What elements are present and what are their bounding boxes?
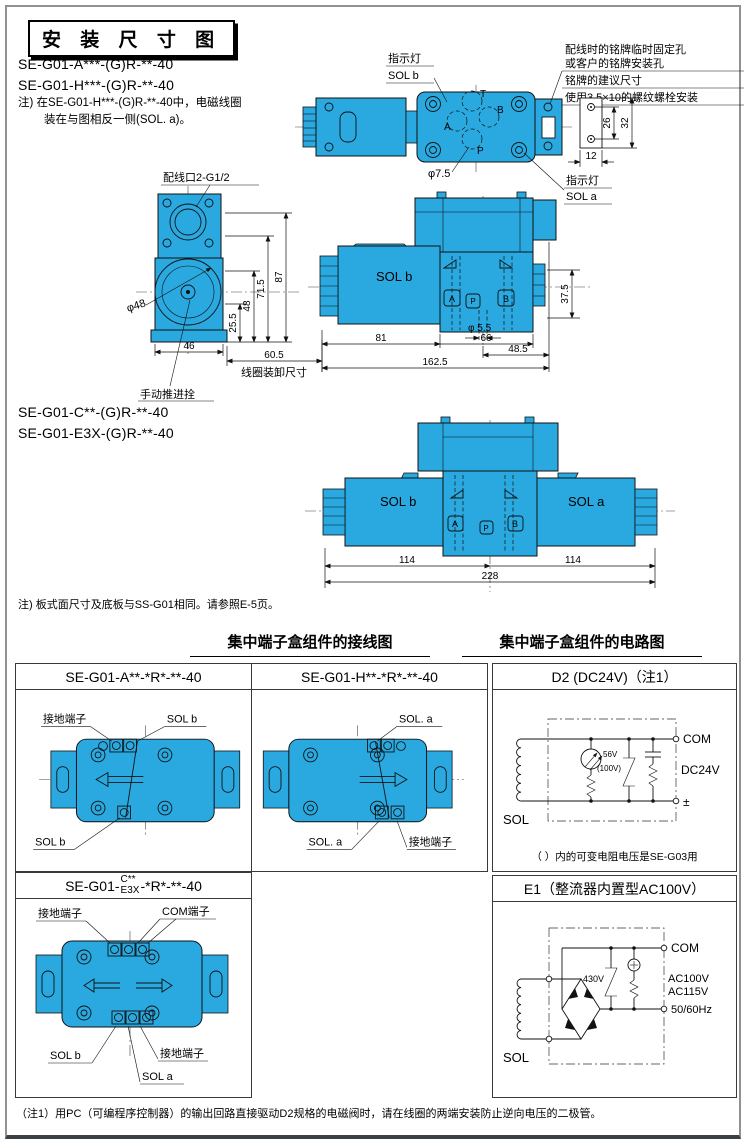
- cell-a-sol-top-label: SOL b: [167, 713, 197, 725]
- indicator-b-label: 指示灯: [388, 51, 421, 65]
- double-view: SOL b SOL a A P B 114 114: [305, 417, 675, 592]
- cell-a-sol-bottom-label: SOL b: [35, 836, 65, 848]
- e1-circuit-diagram: 430V COM AC100V AC115V 50/60Hz SOL: [493, 902, 735, 1096]
- dim-114-right: 114: [565, 555, 581, 566]
- cell-c-header-bottom: E3X: [121, 886, 140, 897]
- indicator-a-sol: SOL a: [566, 191, 598, 203]
- cell-c-sol-b-label: SOL b: [50, 1050, 81, 1062]
- dim-37-5: 37.5: [560, 284, 571, 304]
- cell-h-sol-bottom-label: SOL. a: [309, 836, 343, 848]
- d2-sol-label: SOL: [503, 812, 529, 827]
- indicator-a-label: 指示灯: [566, 173, 599, 187]
- d2-circuit-box: D2 (DC24V)（注1） 56V (100V): [492, 663, 737, 872]
- model-list-mid: SE-G01-C**-(G)R-**-40 SE-G01-E3X-(G)R-**…: [18, 402, 174, 444]
- front-view: SOL b A P B 37.5 φ 5.5: [308, 192, 592, 372]
- dim-26: 26: [602, 117, 613, 129]
- note-1: 注) 在SE-G01-H***-(G)R-**-40中，电磁线圈 装在与图相反一…: [18, 95, 348, 130]
- d2-com-label: COM: [683, 732, 711, 746]
- cell-h-sol-top-label: SOL. a: [399, 713, 433, 725]
- d2-circuit-diagram: 56V (100V) COM DC24V ± SOL: [493, 690, 735, 870]
- e1-varistor-voltage: 430V: [583, 974, 604, 984]
- cell-a-diagram: 接地端子 SOL b SOL b: [16, 690, 251, 870]
- cell-c-header-suffix: -*R*-**-40: [140, 878, 201, 894]
- dim-48: 48: [242, 300, 253, 312]
- dim-114-left: 114: [399, 555, 415, 566]
- wiring-section-title: 集中端子盒组件的接线图: [190, 631, 430, 657]
- nameplate-notes: 配线时的铭牌临时固定孔 或客户的铭牌安装孔 铭牌的建议尺寸 使用3.5×10的螺…: [550, 42, 744, 105]
- d2-voltage-label: DC24V: [681, 763, 720, 777]
- port-b-label: B: [497, 105, 504, 116]
- note-plate-hole-1: 配线时的铭牌临时固定孔: [565, 42, 686, 56]
- d2-footer-note: （ ）内的可变电阻电压是SE-G03用: [493, 849, 736, 864]
- cell-a-ground-label: 接地端子: [43, 711, 86, 725]
- e1-varistor: [605, 968, 617, 996]
- cell-c-header-stack: C** E3X: [121, 875, 140, 896]
- d2-header: D2 (DC24V)（注1）: [493, 664, 736, 690]
- indicator-b-sol: SOL b: [388, 70, 419, 82]
- port-p-label: P: [477, 146, 484, 157]
- cell-h-header: SE-G01-H**-*R*-**-40: [252, 664, 487, 690]
- model-e3x: SE-G01-E3X-(G)R-**-40: [18, 423, 174, 444]
- cell-c-ground-bottom-label: 接地端子: [160, 1047, 204, 1060]
- e1-sol-label: SOL: [503, 1050, 529, 1065]
- dim-87: 87: [274, 271, 285, 283]
- dim-48-5: 48.5: [508, 344, 528, 355]
- e1-voltage-1: AC100V: [668, 973, 710, 985]
- note-plate-hole-2: 或客户的铭牌安装孔: [565, 56, 664, 70]
- dim-66: 66: [480, 333, 492, 344]
- port-t-label: T: [480, 89, 486, 100]
- d2-zener-voltage: 56V: [603, 750, 618, 759]
- plan-view: T B A P 指示灯 SOL b φ7.5 指示灯 SOL a 配线时的铭牌临…: [295, 42, 744, 204]
- model-a: SE-G01-A***-(G)R-**-40: [18, 54, 174, 75]
- front-sol-b-label: SOL b: [376, 269, 412, 284]
- d2-polarity-label: ±: [683, 795, 690, 809]
- dia-7-5-label: φ7.5: [428, 168, 450, 180]
- note-1-line-1: 注) 在SE-G01-H***-(G)R-**-40中，电磁线圈: [18, 95, 348, 112]
- model-list-top: SE-G01-A***-(G)R-**-40 SE-G01-H***-(G)R-…: [18, 54, 174, 96]
- cell-c-box: SE-G01- C** E3X -*R*-**-40: [15, 872, 252, 1098]
- e1-voltage-2: AC115V: [668, 986, 709, 998]
- wiring-table: SE-G01-A**-*R*-**-40: [15, 663, 488, 872]
- dim-71-5: 71.5: [256, 279, 267, 299]
- double-port-p: P: [483, 524, 488, 533]
- e1-bridge: [562, 979, 600, 1039]
- dim-60-5: 60.5: [264, 350, 284, 361]
- cell-c-com-label: COM端子: [162, 905, 210, 918]
- page-title: 安 装 尺 寸 图: [28, 20, 235, 57]
- nameplate-detail: 26 32 12: [568, 98, 637, 167]
- note-3: （注1）用PC（可编程序控制器）的输出回路直接驱动D2规格的电磁阀时，请在线圈的…: [16, 1106, 732, 1123]
- cell-h: SE-G01-H**-*R*-**-40: [252, 664, 487, 871]
- e1-header: E1（整流器内置型AC100V）: [493, 876, 736, 902]
- cell-h-diagram: SOL. a SOL. a 接地端子: [252, 690, 487, 870]
- catalog-page: T B A P 指示灯 SOL b φ7.5 指示灯 SOL a 配线时的铭牌临…: [0, 0, 750, 1148]
- note-2: 注) 板式面尺寸及底板与SS-G01相同。请参照E-5页。: [18, 597, 279, 614]
- cell-a: SE-G01-A**-*R*-**-40: [16, 664, 251, 871]
- cell-c-sol-a-label: SOL a: [142, 1071, 174, 1083]
- front-port-b: B: [503, 294, 509, 304]
- note-plate-size: 铭牌的建议尺寸: [565, 73, 642, 87]
- cell-a-header: SE-G01-A**-*R*-**-40: [16, 664, 251, 690]
- e1-coil: [517, 979, 521, 1039]
- dim-46: 46: [183, 341, 195, 352]
- double-port-b: B: [512, 519, 518, 529]
- dim-12: 12: [585, 151, 597, 162]
- manual-pin-label: 手动推进拴: [140, 387, 195, 401]
- cell-c-header-top: C**: [121, 875, 136, 886]
- cell-c-header-prefix: SE-G01-: [65, 878, 119, 894]
- model-h: SE-G01-H***-(G)R-**-40: [18, 75, 174, 96]
- coil-removal-label: 线圈装卸尺寸: [241, 365, 307, 379]
- d2-zener-voltage-alt: (100V): [597, 764, 621, 773]
- double-sol-a-label: SOL a: [568, 494, 605, 509]
- dim-228: 228: [482, 571, 499, 582]
- d2-coil: [517, 739, 521, 801]
- wiring-port-label: 配线口2-G1/2: [163, 170, 230, 184]
- front-port-a: A: [449, 294, 455, 304]
- e1-frequency-label: 50/60Hz: [671, 1004, 712, 1016]
- cell-h-ground-label: 接地端子: [409, 834, 452, 848]
- dim-81: 81: [375, 333, 387, 344]
- circuit-section-title: 集中端子盒组件的电路图: [462, 631, 702, 657]
- cell-c-header: SE-G01- C** E3X -*R*-**-40: [16, 873, 251, 899]
- cell-c-ground-top-label: 接地端子: [38, 907, 82, 920]
- dim-32: 32: [620, 117, 631, 129]
- model-c: SE-G01-C**-(G)R-**-40: [18, 402, 174, 423]
- dim-162-5: 162.5: [422, 357, 447, 368]
- port-a-label: A: [444, 122, 451, 133]
- cell-c-diagram: 接地端子 COM端子 SOL b 接地端子 SOL a: [16, 899, 250, 1096]
- e1-com-label: COM: [671, 941, 699, 955]
- side-view: 配线口2-G1/2 φ48 手动推进拴 25.5 48 71.5: [125, 170, 322, 401]
- double-sol-b-label: SOL b: [380, 494, 416, 509]
- front-port-p: P: [470, 297, 475, 306]
- d2-varistor: [623, 758, 635, 786]
- double-port-a: A: [452, 519, 458, 529]
- dia-48-label: φ48: [125, 297, 147, 314]
- note-1-line-2: 装在与图相反一侧(SOL. a)。: [44, 112, 348, 129]
- dim-25-5: 25.5: [228, 313, 239, 333]
- e1-circuit-box: E1（整流器内置型AC100V） 430V: [492, 875, 737, 1098]
